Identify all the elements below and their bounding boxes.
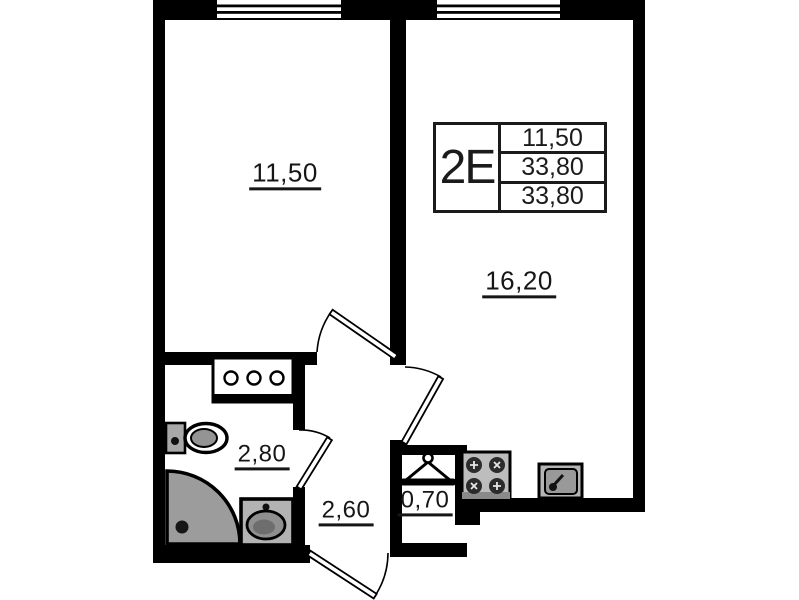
room1-area-label: 11,50	[249, 159, 321, 190]
unit-total-area-with-balcony: 33,80	[501, 181, 604, 210]
closet-area-label: 0,70	[398, 487, 453, 516]
door-room1-icon	[317, 310, 398, 359]
vanity-counter-icon	[213, 358, 293, 402]
stove-icon	[462, 452, 510, 499]
hall-area-label: 2,60	[319, 497, 374, 526]
unit-living-area: 11,50	[501, 125, 604, 151]
door-bathroom-icon	[297, 430, 332, 489]
toilet-icon	[166, 423, 227, 453]
bathroom-area-label: 2,80	[235, 441, 290, 470]
unit-type-label: 2Е	[436, 125, 501, 210]
door-kitchen-living-icon	[402, 367, 444, 444]
unit-total-area: 33,80	[501, 151, 604, 180]
door-entrance-icon	[307, 551, 388, 599]
unit-info-box: 2Е 11,50 33,80 33,80	[433, 122, 607, 213]
kitchen-living-area-label: 16,20	[482, 267, 556, 298]
floor-plan: 11,50 16,20 2,80 2,60 0,70 2Е 11,50 33,8…	[0, 0, 799, 600]
unit-area-rows: 11,50 33,80 33,80	[501, 125, 604, 210]
shower-icon	[167, 471, 240, 544]
window-icon	[217, 0, 341, 18]
hanger-icon	[403, 454, 453, 483]
washbasin-icon	[241, 499, 293, 545]
kitchen-sink-icon	[539, 464, 582, 498]
window-icon	[437, 0, 560, 18]
